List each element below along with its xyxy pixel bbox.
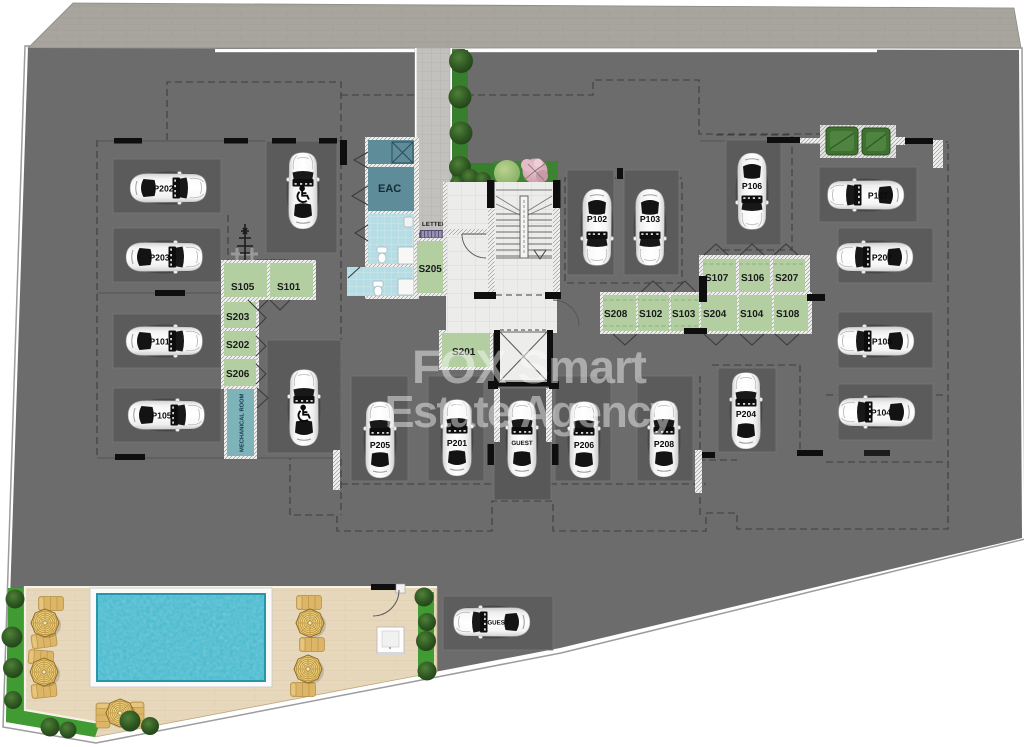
svg-text:S108: S108 [776,309,800,320]
svg-text:P106: P106 [742,181,762,191]
svg-text:P101: P101 [149,337,169,347]
svg-text:S103: S103 [672,309,696,320]
svg-text:S206: S206 [226,369,250,380]
svg-text:P105: P105 [151,411,171,421]
svg-text:S207: S207 [775,273,799,284]
svg-text:S208: S208 [604,309,628,320]
svg-text:S203: S203 [226,312,250,323]
svg-text:P108: P108 [872,337,892,347]
svg-text:P202: P202 [153,184,173,194]
svg-text:P107: P107 [868,191,888,201]
svg-text:S202: S202 [226,340,250,351]
svg-text:S101: S101 [277,282,301,293]
svg-text:P201: P201 [447,438,467,448]
svg-text:S205: S205 [419,264,443,275]
svg-text:EAC: EAC [378,183,401,195]
svg-text:P205: P205 [370,440,390,450]
svg-text:S106: S106 [741,273,765,284]
svg-text:S107: S107 [705,273,729,284]
svg-text:S204: S204 [703,309,727,320]
svg-text:P104: P104 [871,408,891,418]
svg-text:P204: P204 [736,409,756,419]
svg-text:GUEST: GUEST [487,620,509,627]
svg-text:P102: P102 [587,214,607,224]
svg-text:P103: P103 [640,214,660,224]
svg-text:P208: P208 [654,439,674,449]
svg-text:P203: P203 [149,253,169,263]
svg-text:S104: S104 [740,309,764,320]
svg-text:P207: P207 [872,253,892,263]
svg-text:S105: S105 [231,282,255,293]
svg-text:GUEST: GUEST [511,440,533,447]
svg-text:MECHANICAL ROOM: MECHANICAL ROOM [239,393,246,452]
svg-text:P206: P206 [574,440,594,450]
svg-text:Estate Agency: Estate Agency [385,386,675,437]
svg-text:S102: S102 [639,309,663,320]
